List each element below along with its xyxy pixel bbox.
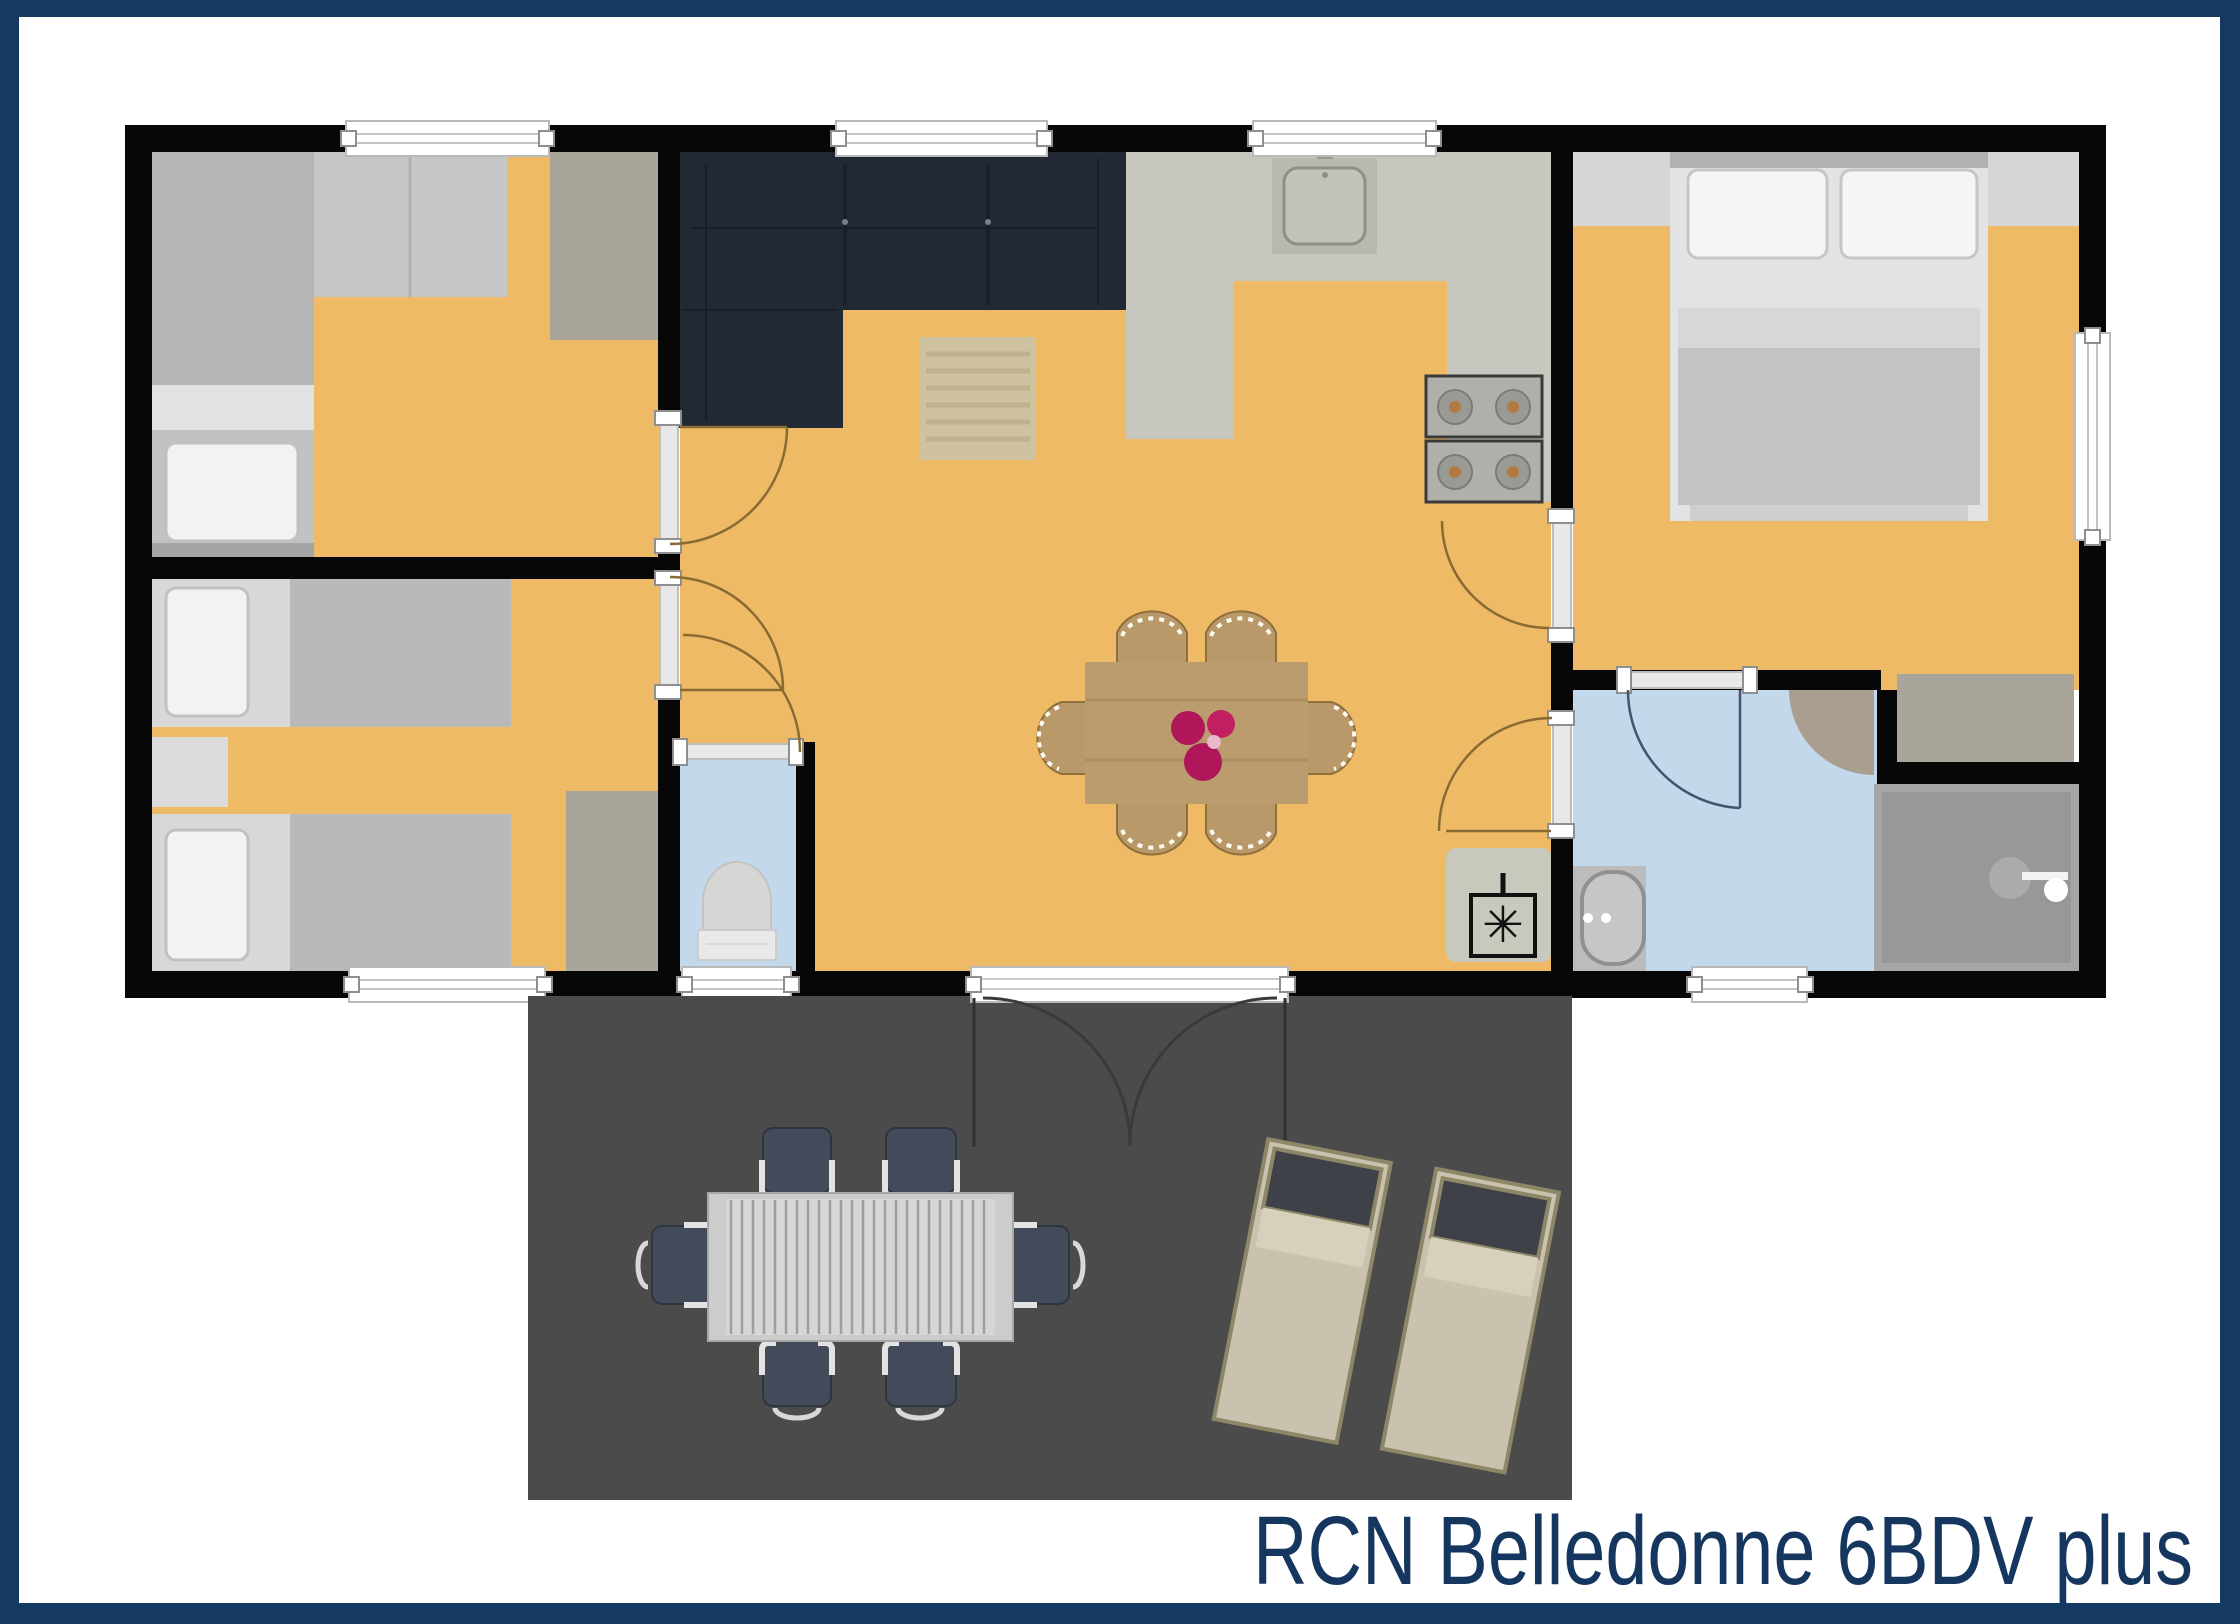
svg-text:RCN Belledonne 6BDV plus: RCN Belledonne 6BDV plus <box>1253 1496 2193 1605</box>
svg-text:✳: ✳ <box>1482 897 1524 953</box>
